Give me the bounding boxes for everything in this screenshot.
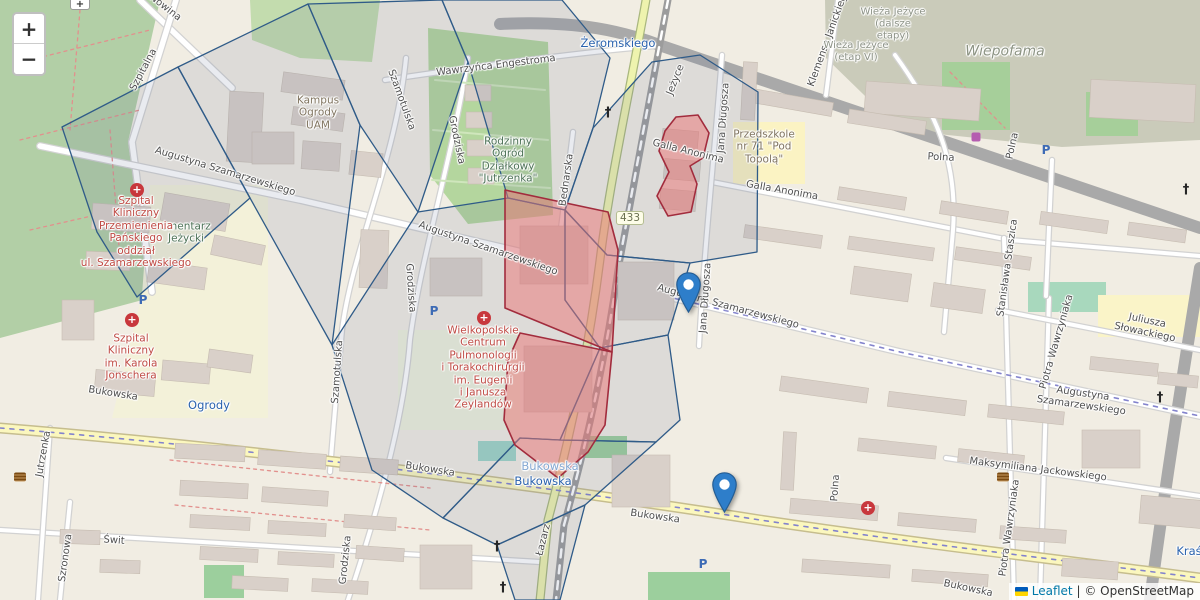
attribution-bar: Leaflet | © OpenStreetMap [1009, 583, 1200, 600]
osm-copyright: © OpenStreetMap [1084, 584, 1194, 598]
zoom-control: + − [12, 12, 46, 76]
map-canvas[interactable]: NowinaSzpitalnacmentarz JeżyckiKampus Og… [0, 0, 1200, 600]
marker-szamarzewskiego[interactable] [676, 272, 701, 317]
map-pin-icon [676, 272, 701, 313]
leaflet-link[interactable]: Leaflet [1032, 584, 1073, 598]
vector-overlay-layer [0, 0, 1200, 600]
map-pin-icon [712, 472, 737, 513]
marker-bukowska[interactable] [712, 472, 737, 517]
zoom-in-button[interactable]: + [14, 14, 44, 44]
cropped-control: + [70, 0, 90, 10]
ukraine-flag-icon [1015, 587, 1028, 596]
attribution-separator: | [1076, 584, 1080, 598]
zoom-out-button[interactable]: − [14, 44, 44, 74]
